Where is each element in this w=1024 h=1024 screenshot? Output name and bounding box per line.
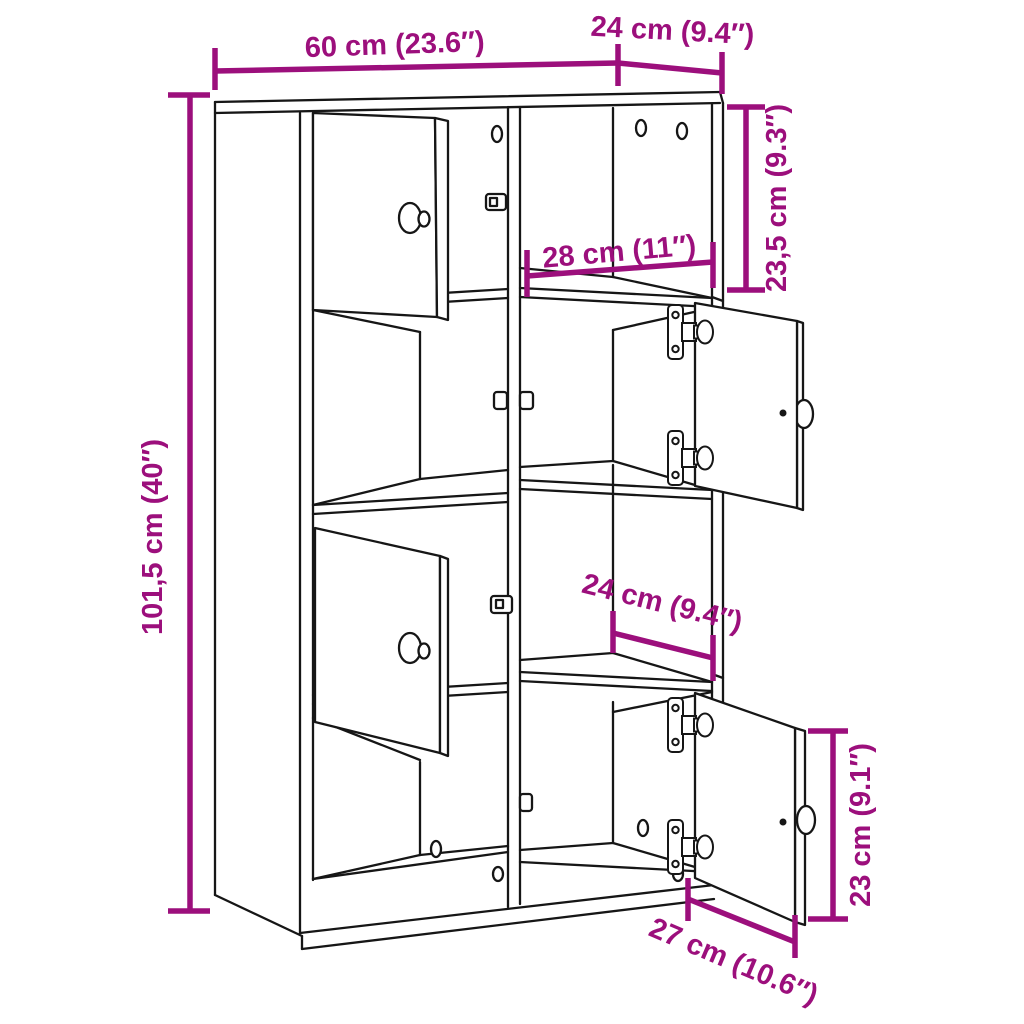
- shelf-pin-hole: [636, 120, 646, 136]
- door-knob-screw: [780, 819, 787, 826]
- hinge-screw: [672, 312, 678, 318]
- shelf-support-fitting: [520, 794, 532, 811]
- door-knob-screw: [780, 410, 787, 417]
- top-panel-lower-edge: [215, 103, 720, 113]
- hinge-screw: [672, 705, 678, 711]
- door-top-left: [313, 113, 448, 320]
- hinge-screw: [672, 438, 678, 444]
- dimension-inner-depth: 24 cm (9.4″): [579, 568, 746, 681]
- door-middle-left: [315, 528, 448, 756]
- hinge-cup: [697, 714, 713, 737]
- interior-floor-edge: [420, 470, 508, 479]
- bookcase-carcass: [215, 92, 723, 949]
- dimension-height-label: 101,5 cm (40″): [137, 439, 169, 635]
- dimension-top-compartment-height: 23,5 cm (9.3″): [727, 104, 793, 292]
- dimension-inner-width: 28 cm (11″): [527, 229, 713, 297]
- shelf-support-fitting: [494, 392, 507, 409]
- interior-floor-edge: [520, 461, 613, 467]
- cam-lock-detail: [496, 600, 503, 608]
- hinge-cup: [697, 321, 713, 344]
- dimension-width-top: 60 cm (23.6″): [215, 26, 618, 90]
- right-wall-shelf-mark: [712, 297, 723, 301]
- hinge-cup: [697, 447, 713, 470]
- dimension-inner-depth-label: 24 cm (9.4″): [579, 568, 746, 639]
- door-knob: [399, 633, 421, 663]
- hinge-screw: [672, 472, 678, 478]
- hinge-screw: [672, 827, 678, 833]
- shelf-pin-hole: [492, 126, 502, 142]
- door-knob: [797, 806, 815, 834]
- hinge-screw: [672, 346, 678, 352]
- shelf-line: [520, 681, 712, 691]
- dimension-bottom-door-height: 23 cm (9.1″): [808, 731, 877, 919]
- door-knob-stem: [419, 644, 430, 659]
- dimension-height-left: 101,5 cm (40″): [137, 95, 210, 911]
- shelf-support-fitting: [520, 392, 533, 409]
- hinge-screw: [672, 739, 678, 745]
- shelf-line: [520, 489, 712, 499]
- shelf-pin-hole: [431, 841, 441, 857]
- dimension-width-label: 60 cm (23.6″): [304, 26, 485, 64]
- left-side-bottom-edge: [215, 895, 302, 936]
- dimension-line: [215, 63, 618, 71]
- dimension-line: [618, 63, 722, 73]
- dimension-top-compartment-height-label: 23,5 cm (9.3″): [761, 104, 793, 292]
- cam-lock-detail: [490, 198, 497, 206]
- dimension-depth-top: 24 cm (9.4″): [590, 11, 755, 94]
- interior-floor-edge: [520, 843, 613, 850]
- dimension-line: [613, 633, 713, 658]
- hinge-cup: [697, 836, 713, 859]
- door-edge-face: [435, 118, 448, 320]
- door-panel: [315, 528, 440, 753]
- dimension-diagram-page: 60 cm (23.6″) 24 cm (9.4″) 101,5 cm (40″…: [0, 0, 1024, 1024]
- hinge-screw: [672, 861, 678, 867]
- bookcase-dimension-diagram: 60 cm (23.6″) 24 cm (9.4″) 101,5 cm (40″…: [0, 0, 1024, 1024]
- dimension-depth-label: 24 cm (9.4″): [590, 11, 755, 52]
- interior-floor-edge: [520, 653, 613, 660]
- top-panel-outer-edge: [215, 92, 720, 102]
- shelf-pin-hole: [638, 820, 648, 836]
- shelf-pin-hole: [493, 867, 503, 881]
- dimension-bottom-door-height-label: 23 cm (9.1″): [845, 743, 877, 907]
- shelf-pin-hole: [677, 123, 687, 139]
- shelf-line: [520, 297, 712, 307]
- door-edge-face: [440, 556, 448, 756]
- door-knob-stem: [419, 212, 430, 227]
- dimension-inner-width-label: 28 cm (11″): [541, 229, 697, 274]
